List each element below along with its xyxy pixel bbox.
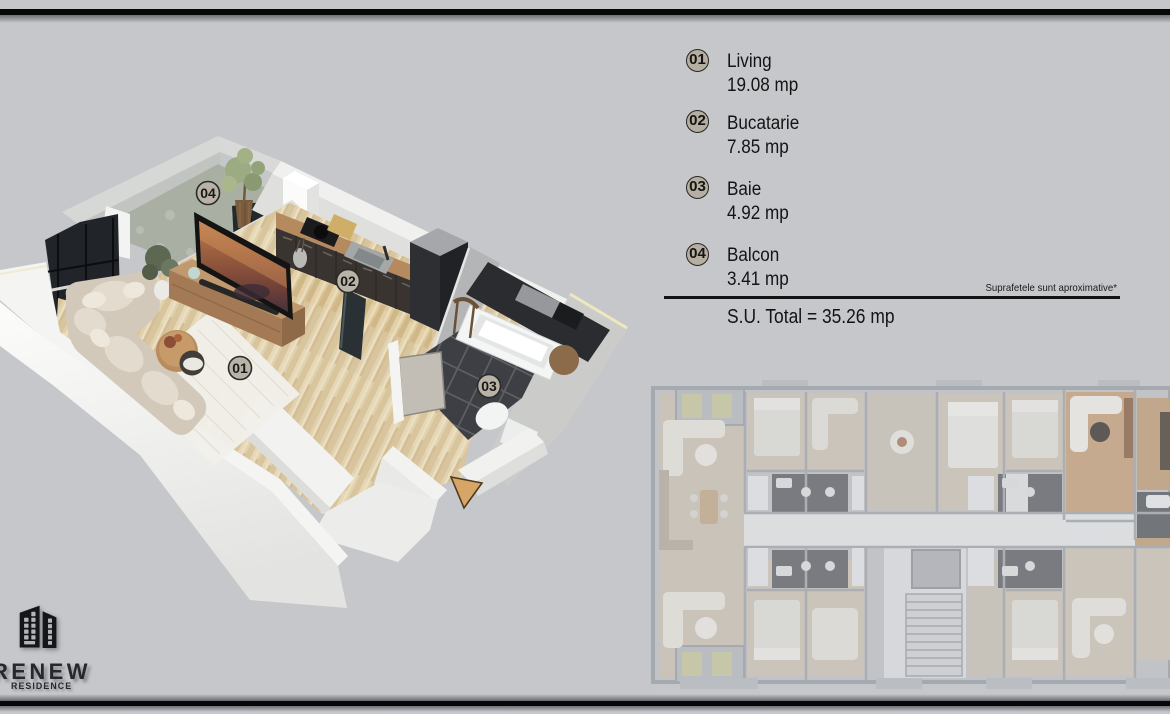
svg-text:02: 02	[340, 273, 356, 289]
svg-text:03: 03	[481, 378, 497, 394]
svg-text:01: 01	[232, 360, 248, 376]
svg-text:04: 04	[200, 185, 216, 201]
